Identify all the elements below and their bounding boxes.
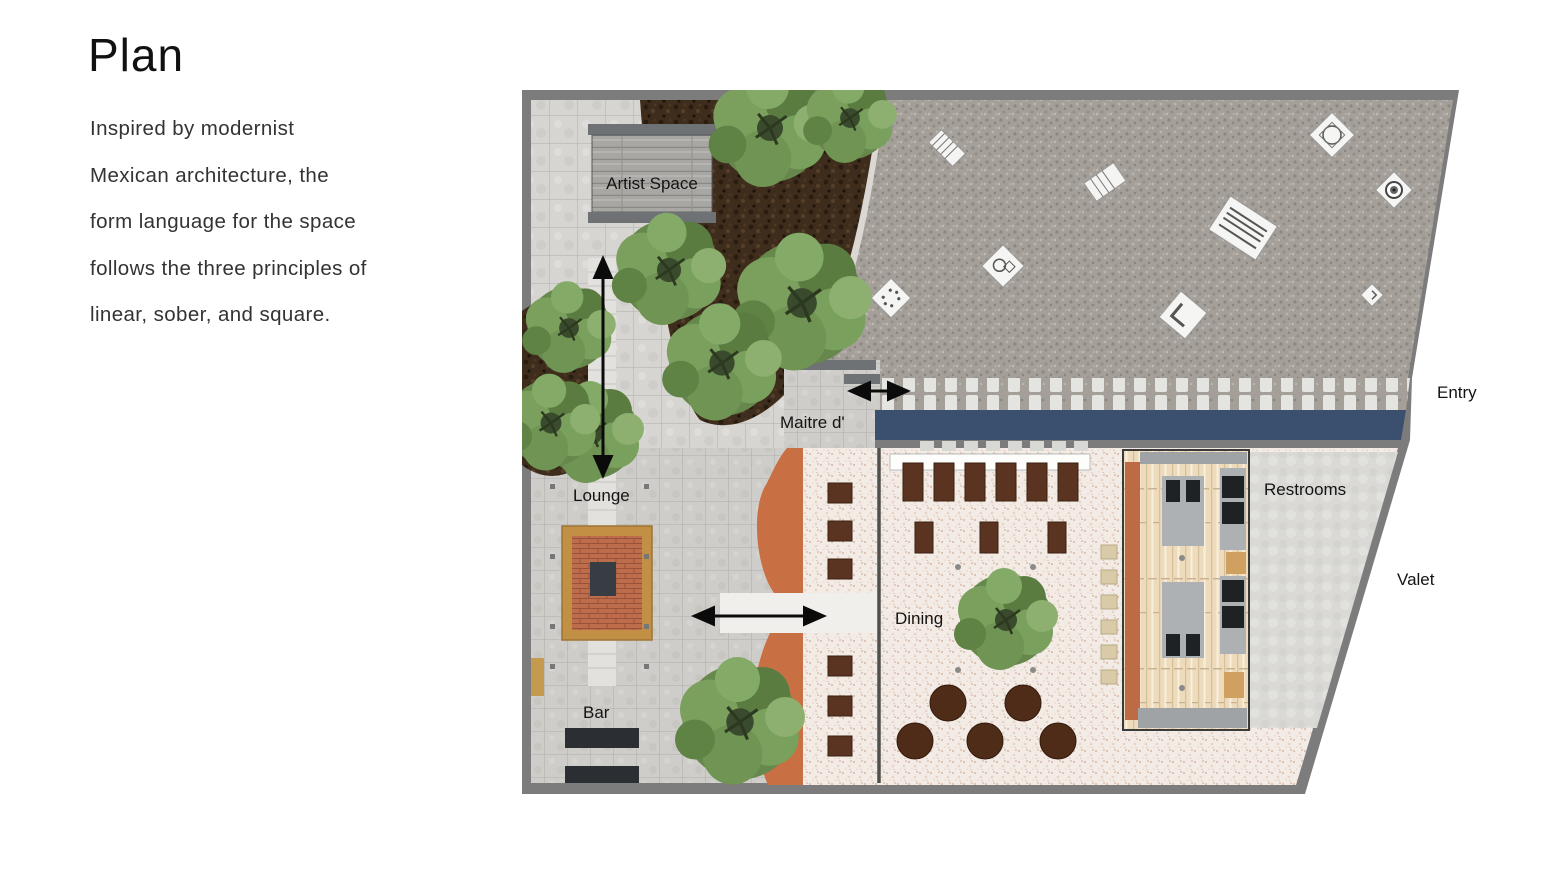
label-valet: Valet [1397,570,1435,590]
intro-line: linear, sober, and square. [90,292,367,339]
entry-walkway-navy [875,410,1406,440]
label-maitre-d: Maitre d' [780,413,845,433]
intro-line: Mexican architecture, the [90,153,367,200]
label-dining: Dining [895,609,943,629]
white-path [720,593,880,633]
intro-line: follows the three principles of [90,246,367,293]
maitre-d-tiles [784,360,880,448]
restroom-building [1123,450,1249,730]
label-entry: Entry [1437,383,1477,403]
page-title: Plan [88,28,184,82]
bar-counter [565,728,639,748]
bar-counter [565,766,639,783]
label-restrooms: Restrooms [1264,480,1346,500]
wall-segment [844,374,880,384]
gold-strip [531,658,544,696]
stage-edge [588,124,716,135]
intro-line: form language for the space [90,199,367,246]
intro-line: Inspired by modernist [90,106,367,153]
presentation-slide: Plan Inspired by modernist Mexican archi… [0,0,1560,878]
label-lounge: Lounge [573,486,630,506]
intro-paragraph: Inspired by modernist Mexican architectu… [90,106,367,339]
label-bar: Bar [583,703,609,723]
label-artist-space: Artist Space [592,174,712,194]
entry-crosswalk [880,378,1410,410]
site-plan: Artist Space Maitre d' Lounge Bar Dining… [522,88,1462,794]
gravel-plaza [822,100,1453,378]
firepit-icon [562,526,652,640]
